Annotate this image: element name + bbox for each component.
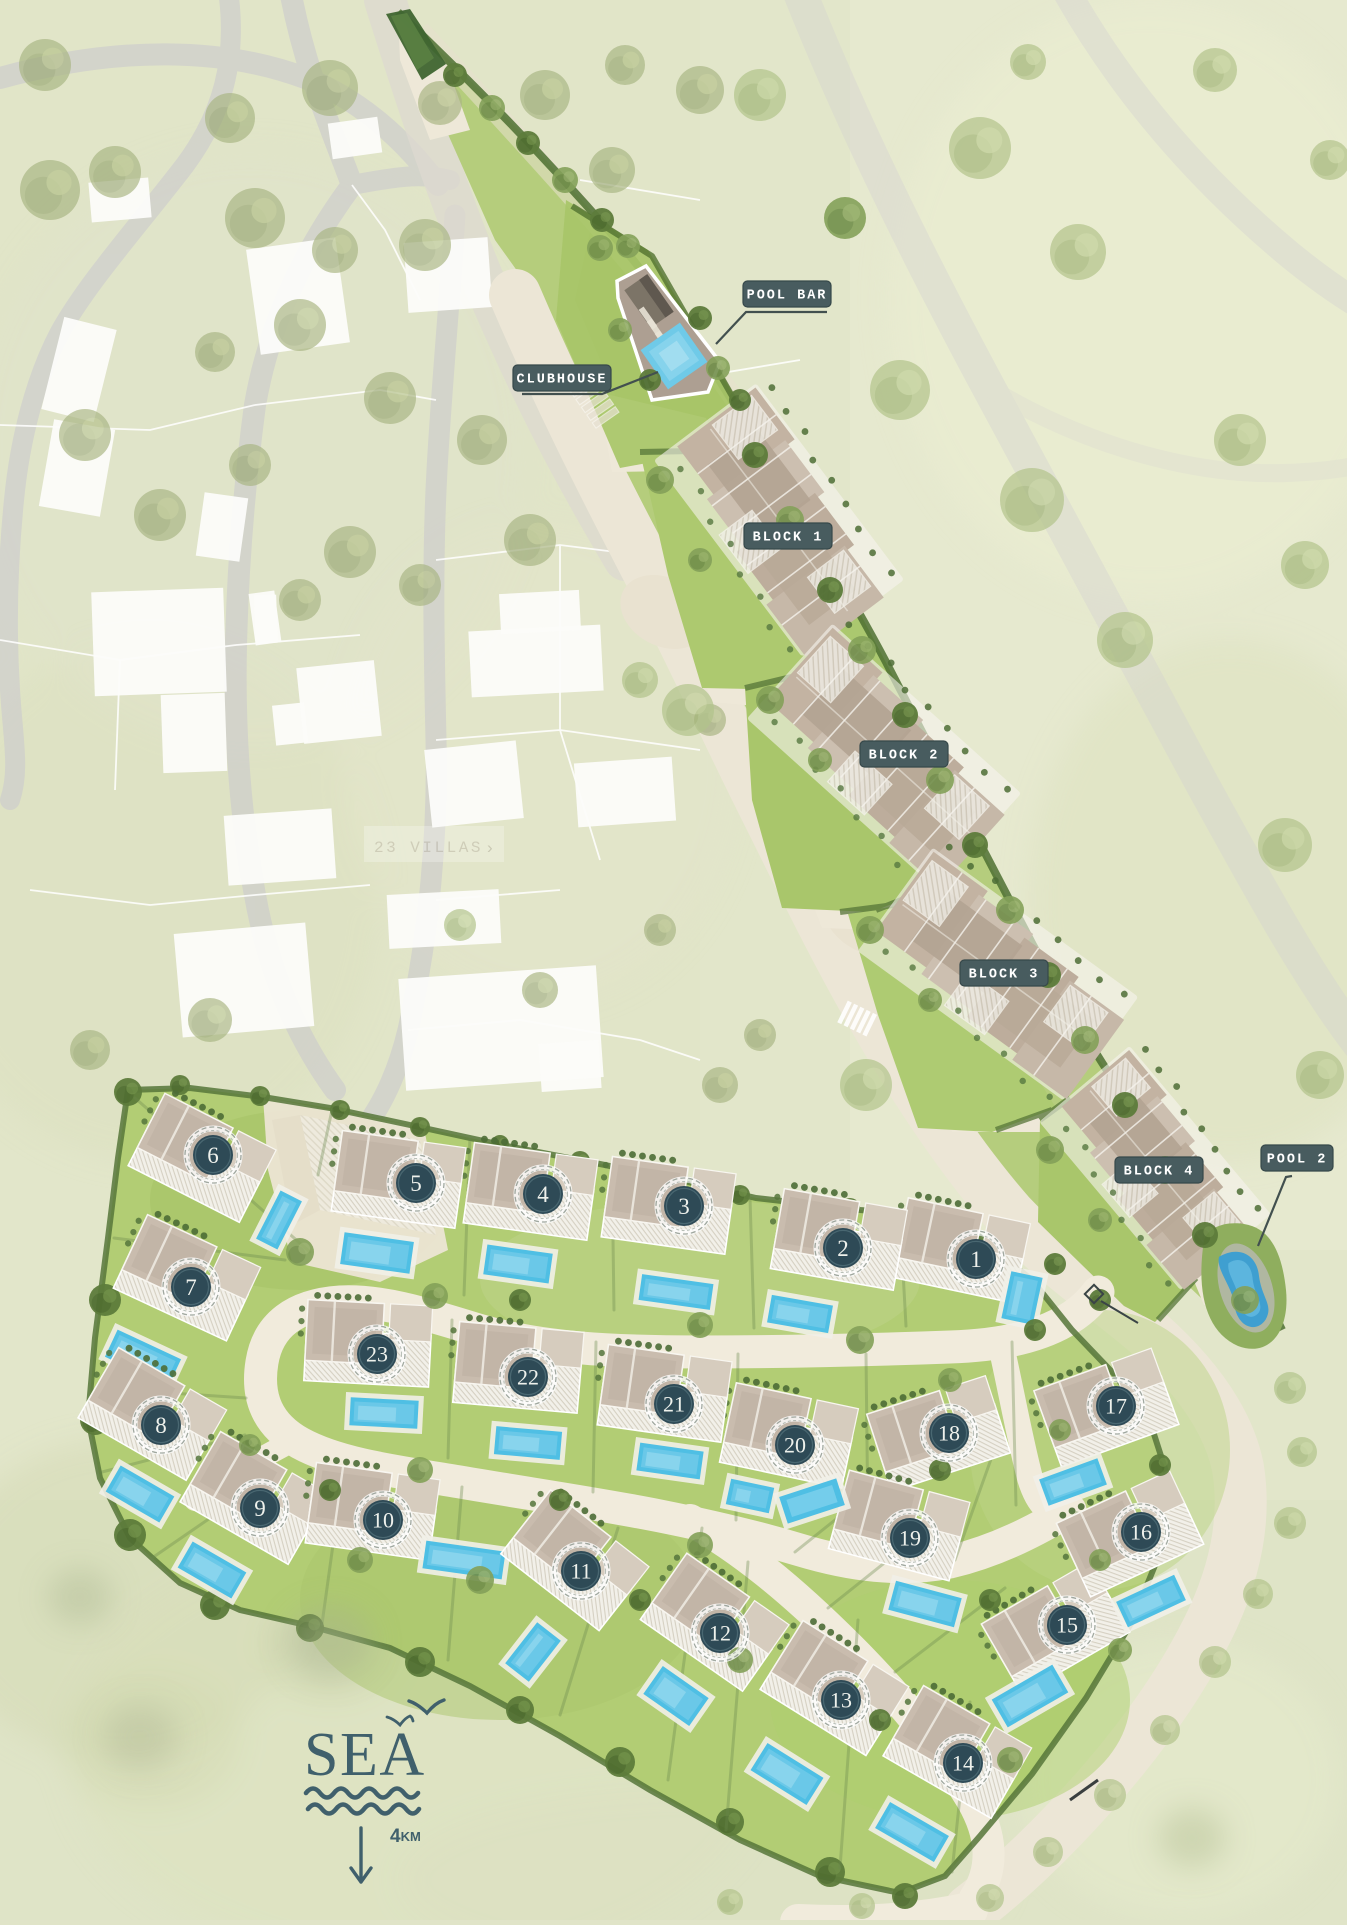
svg-text:3: 3 xyxy=(678,1194,690,1219)
svg-text:BLOCK 3: BLOCK 3 xyxy=(969,968,1040,983)
svg-text:20: 20 xyxy=(784,1432,806,1457)
svg-text:6: 6 xyxy=(207,1143,219,1168)
svg-text:16: 16 xyxy=(1130,1519,1152,1544)
svg-text:11: 11 xyxy=(570,1558,591,1583)
svg-text:15: 15 xyxy=(1056,1612,1078,1637)
svg-text:12: 12 xyxy=(709,1620,731,1645)
svg-text:5: 5 xyxy=(410,1171,422,1196)
svg-text:BLOCK 1: BLOCK 1 xyxy=(753,531,824,546)
svg-text:10: 10 xyxy=(372,1507,394,1532)
svg-text:23 VILLAS: 23 VILLAS xyxy=(374,839,483,857)
svg-text:POOL 2: POOL 2 xyxy=(1267,1153,1328,1168)
svg-text:›: › xyxy=(487,838,493,857)
svg-text:19: 19 xyxy=(899,1525,921,1550)
svg-text:8: 8 xyxy=(155,1413,167,1438)
svg-text:1: 1 xyxy=(970,1247,982,1272)
svg-text:23: 23 xyxy=(366,1341,388,1366)
svg-text:7: 7 xyxy=(185,1275,197,1300)
svg-text:POOL BAR: POOL BAR xyxy=(747,289,828,304)
svg-text:18: 18 xyxy=(938,1420,960,1445)
svg-text:14: 14 xyxy=(952,1750,974,1775)
svg-text:BLOCK 4: BLOCK 4 xyxy=(1124,1165,1195,1180)
svg-text:21: 21 xyxy=(663,1391,685,1416)
svg-text:13: 13 xyxy=(830,1687,852,1712)
svg-text:4: 4 xyxy=(537,1182,549,1207)
svg-text:CLUBHOUSE: CLUBHOUSE xyxy=(517,373,608,388)
svg-text:17: 17 xyxy=(1105,1393,1127,1418)
svg-text:9: 9 xyxy=(254,1496,266,1521)
svg-text:BLOCK 2: BLOCK 2 xyxy=(869,749,940,764)
svg-text:SEA: SEA xyxy=(304,1721,426,1789)
svg-text:22: 22 xyxy=(517,1364,539,1389)
svg-text:4KM: 4KM xyxy=(390,1826,421,1847)
svg-text:2: 2 xyxy=(837,1236,849,1261)
